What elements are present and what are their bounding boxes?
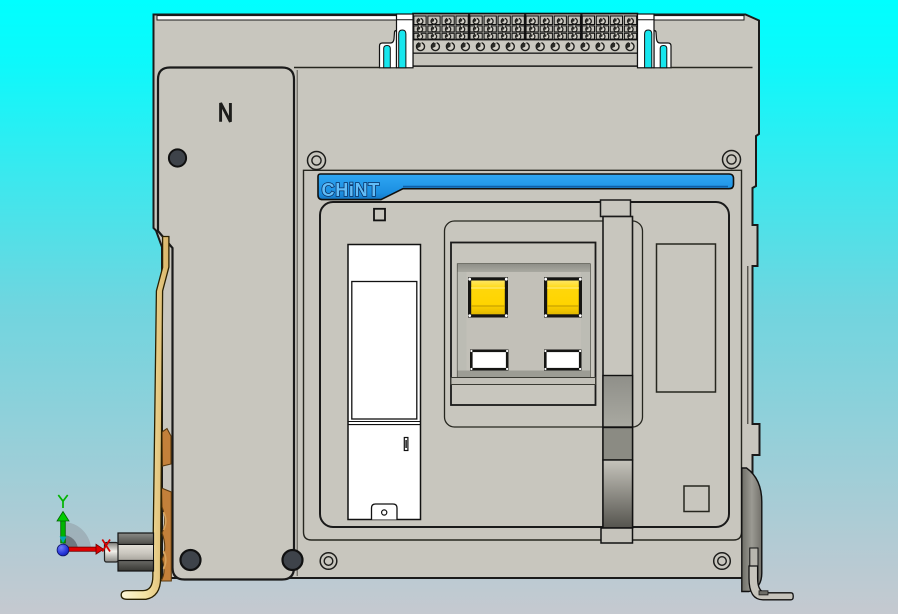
- svg-text:CHiNT: CHiNT: [322, 180, 381, 200]
